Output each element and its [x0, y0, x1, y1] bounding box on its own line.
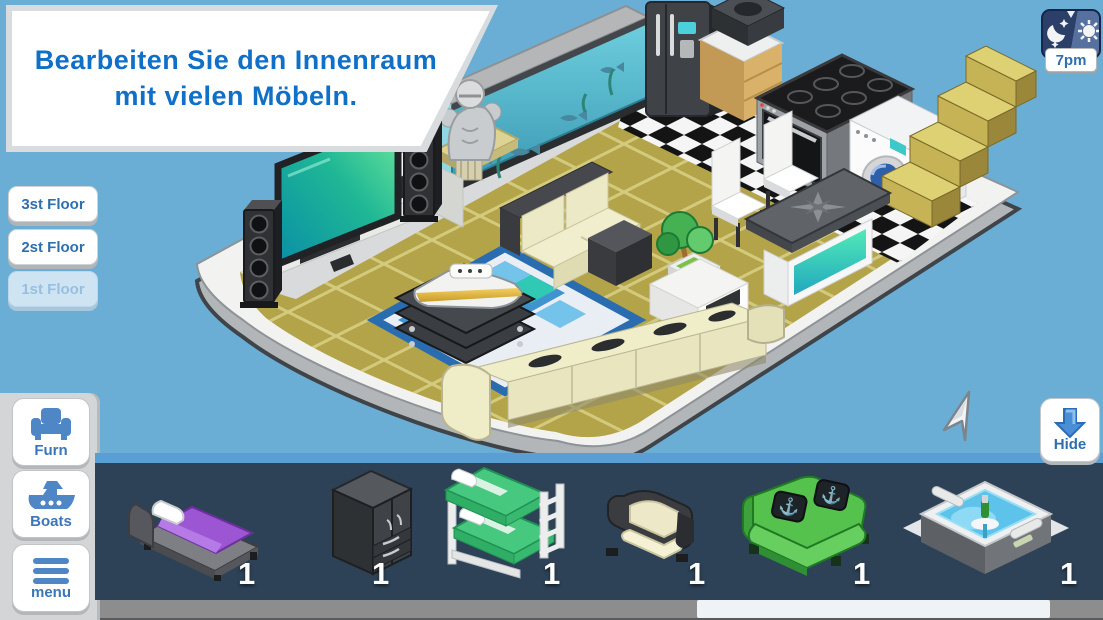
item-count: 1	[688, 556, 705, 592]
armchair-icon	[29, 406, 73, 444]
inventory-item-wardrobe[interactable]	[298, 468, 413, 578]
arrow-down-icon	[1053, 407, 1087, 439]
item-count: 1	[372, 556, 389, 592]
hide-panel-button[interactable]: Hide	[1040, 398, 1100, 462]
moon-icon	[1047, 25, 1065, 42]
furniture-tab-button[interactable]: Furn	[12, 398, 90, 466]
mouse-cursor	[940, 388, 992, 444]
sun-icon	[1078, 20, 1099, 42]
item-count: 1	[543, 556, 560, 592]
inventory-item-hot-tub[interactable]	[893, 462, 1078, 582]
inventory-scrollbar-thumb[interactable]	[697, 600, 1050, 618]
speaker-left[interactable]	[240, 200, 282, 308]
item-count: 1	[238, 556, 255, 592]
item-count: 1	[853, 556, 870, 592]
hot-tub-icon	[893, 462, 1078, 582]
inventory-scrollbar-track[interactable]	[100, 600, 1103, 620]
time-label[interactable]: 7pm	[1045, 48, 1097, 72]
menu-button[interactable]: menu	[12, 544, 90, 612]
boats-tab-button[interactable]: Boats	[12, 470, 90, 538]
floor-button-2[interactable]: 2st Floor	[8, 229, 98, 265]
notch	[1067, 11, 1075, 18]
tutorial-banner: Bearbeiten Sie den Innenraum mit vielen …	[12, 11, 490, 146]
tutorial-banner-text: Bearbeiten Sie den Innenraum mit vielen …	[16, 43, 456, 114]
hamburger-menu-icon	[31, 556, 71, 586]
boat-icon	[27, 479, 75, 515]
game-screen: Bearbeiten Sie den Innenraum mit vielen …	[0, 0, 1103, 620]
star-icon	[1060, 19, 1069, 28]
floor-button-3[interactable]: 3st Floor	[8, 186, 98, 222]
wardrobe-black-icon	[298, 468, 413, 578]
item-count: 1	[1060, 556, 1077, 592]
floor-button-1[interactable]: 1st Floor	[8, 271, 98, 307]
